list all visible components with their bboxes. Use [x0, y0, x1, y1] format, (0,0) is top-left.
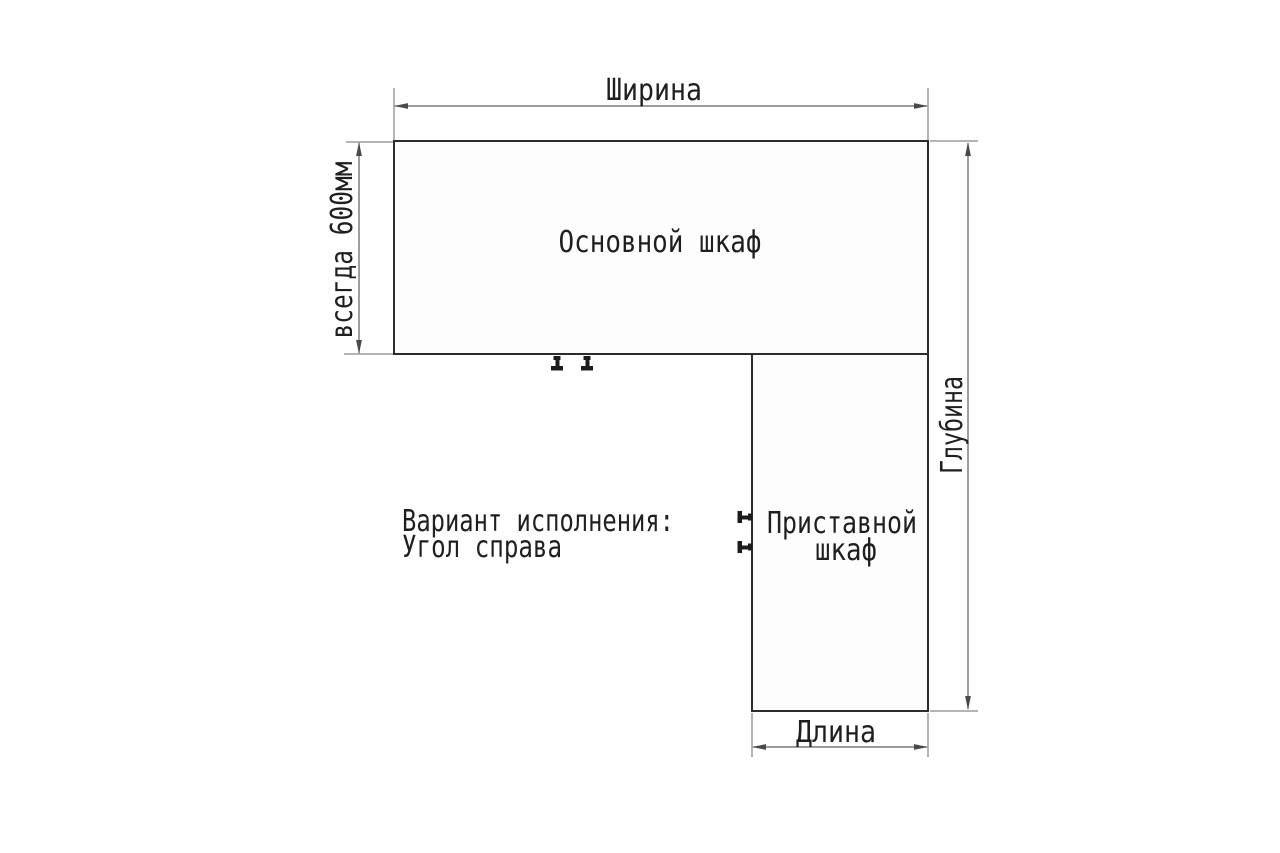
arrow-right-icon — [914, 103, 928, 109]
left-note-label: всегда 600мм — [325, 162, 360, 339]
depth-dimension: Глубина — [930, 141, 978, 711]
diagram-canvas: Ширина всегда 600мм Глубина Длина Основн… — [0, 0, 1280, 853]
furniture-dimension-diagram: Ширина всегда 600мм Глубина Длина Основн… — [0, 0, 1280, 853]
left-dimension: всегда 600мм — [325, 142, 393, 354]
bolt-icon — [581, 356, 593, 371]
arrow-up-icon — [356, 142, 362, 156]
arrow-up-icon — [965, 142, 971, 156]
arrow-right-icon — [914, 744, 928, 750]
bolt-icon — [738, 511, 753, 523]
attached-cabinet-label-line2: шкаф — [815, 533, 877, 568]
bolt-icon — [551, 356, 563, 371]
length-dimension: Длина — [752, 713, 928, 757]
length-label: Длина — [796, 715, 876, 750]
width-label: Ширина — [606, 73, 702, 108]
arrow-down-icon — [356, 340, 362, 354]
variant-note-line2: Угол справа — [402, 530, 562, 565]
arrow-down-icon — [965, 696, 971, 710]
bolt-icon — [738, 541, 753, 553]
arrow-left-icon — [752, 744, 766, 750]
width-dimension: Ширина — [394, 73, 928, 140]
depth-label: Глубина — [935, 376, 970, 474]
arrow-left-icon — [394, 103, 408, 109]
main-cabinet-label: Основной шкаф — [559, 225, 762, 260]
